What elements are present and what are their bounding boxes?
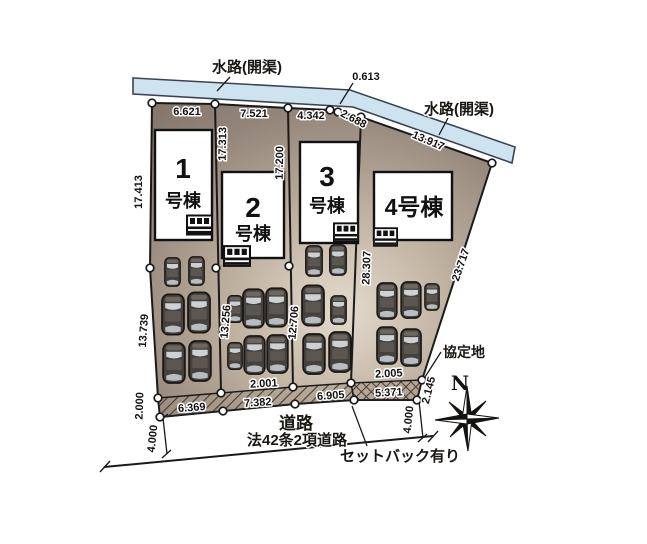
- car-icon: [331, 296, 347, 325]
- dim-bottom-lot1: 6.369: [178, 401, 206, 415]
- car-icon: [377, 283, 397, 319]
- site-plan: 1 号棟 2 号棟 3 号棟 4号棟: [0, 0, 647, 544]
- building-2-suffix: 号棟: [235, 223, 272, 244]
- dim-top-lot3: 4.342: [297, 110, 325, 122]
- dim-top-gap: 0.613: [352, 71, 380, 83]
- dim-road-width-right: 4.000: [402, 405, 417, 434]
- setback-note: セットバック有り: [340, 447, 460, 465]
- car-icon: [377, 327, 397, 364]
- dim-b23-upper: 17.200: [274, 146, 287, 180]
- road-label: 道路: [279, 413, 314, 433]
- building-4-label: 4号棟: [385, 194, 445, 220]
- car-icon: [188, 292, 210, 332]
- car-icon: [163, 343, 185, 383]
- dim-strip-lot4: 2.005: [375, 367, 403, 380]
- car-icon: [329, 332, 351, 372]
- car-icon: [425, 284, 439, 311]
- dim-strip-lot2: 2.001: [250, 377, 278, 390]
- building-4: 4号棟: [374, 172, 452, 246]
- dim-b34: 28.307: [360, 251, 373, 285]
- car-icon: [330, 245, 347, 275]
- dim-left-lower: 13.739: [137, 314, 151, 348]
- building-1-number: 1: [175, 153, 191, 184]
- site-plan-drawing: 1 号棟 2 号棟 3 号棟 4号棟: [0, 0, 647, 544]
- dim-bottom-lot2: 7.382: [244, 396, 272, 410]
- building-1-suffix: 号棟: [165, 190, 202, 211]
- porch-icon: [224, 246, 250, 266]
- agreement-label: 協定地: [443, 344, 485, 360]
- car-icon: [303, 334, 325, 374]
- dim-setback-left: 2.000: [134, 392, 147, 420]
- car-icon: [267, 335, 288, 373]
- porch-icon: [334, 223, 358, 241]
- dim-bottom-lot4: 5.371: [375, 386, 403, 399]
- car-icon: [266, 288, 287, 327]
- car-icon: [401, 329, 421, 366]
- dim-road-width-left: 4.000: [146, 424, 161, 453]
- car-icon: [401, 282, 421, 318]
- waterway-label-right: 水路(開渠): [424, 100, 494, 118]
- car-icon: [165, 258, 181, 287]
- building-2: 2 号棟: [222, 172, 284, 266]
- building-1: 1 号棟: [155, 130, 212, 240]
- car-icon: [228, 343, 243, 370]
- dim-top-lot1: 6.621: [173, 106, 201, 118]
- car-icon: [189, 257, 205, 286]
- waterway-label-left: 水路(開渠): [212, 58, 282, 76]
- road-type-label: 法42条2項道路: [247, 431, 348, 449]
- dim-left-upper: 17.413: [133, 175, 145, 209]
- building-3-suffix: 号棟: [309, 195, 346, 216]
- car-icon: [244, 336, 265, 374]
- dim-b12-upper: 17.313: [217, 127, 230, 161]
- car-icon: [243, 289, 264, 328]
- car-icon: [302, 285, 324, 325]
- dim-top-lot2: 7.521: [240, 108, 268, 120]
- compass-rose: N: [435, 371, 499, 451]
- dim-bottom-lot3: 6.905: [317, 389, 345, 403]
- building-3: 3 号棟: [300, 142, 358, 243]
- porch-icon: [187, 216, 212, 235]
- building-3-number: 3: [319, 161, 335, 192]
- building-2-number: 2: [245, 192, 261, 223]
- car-icon: [306, 246, 323, 276]
- porch-icon: [374, 228, 397, 246]
- car-icon: [189, 341, 211, 381]
- car-icon: [162, 294, 184, 334]
